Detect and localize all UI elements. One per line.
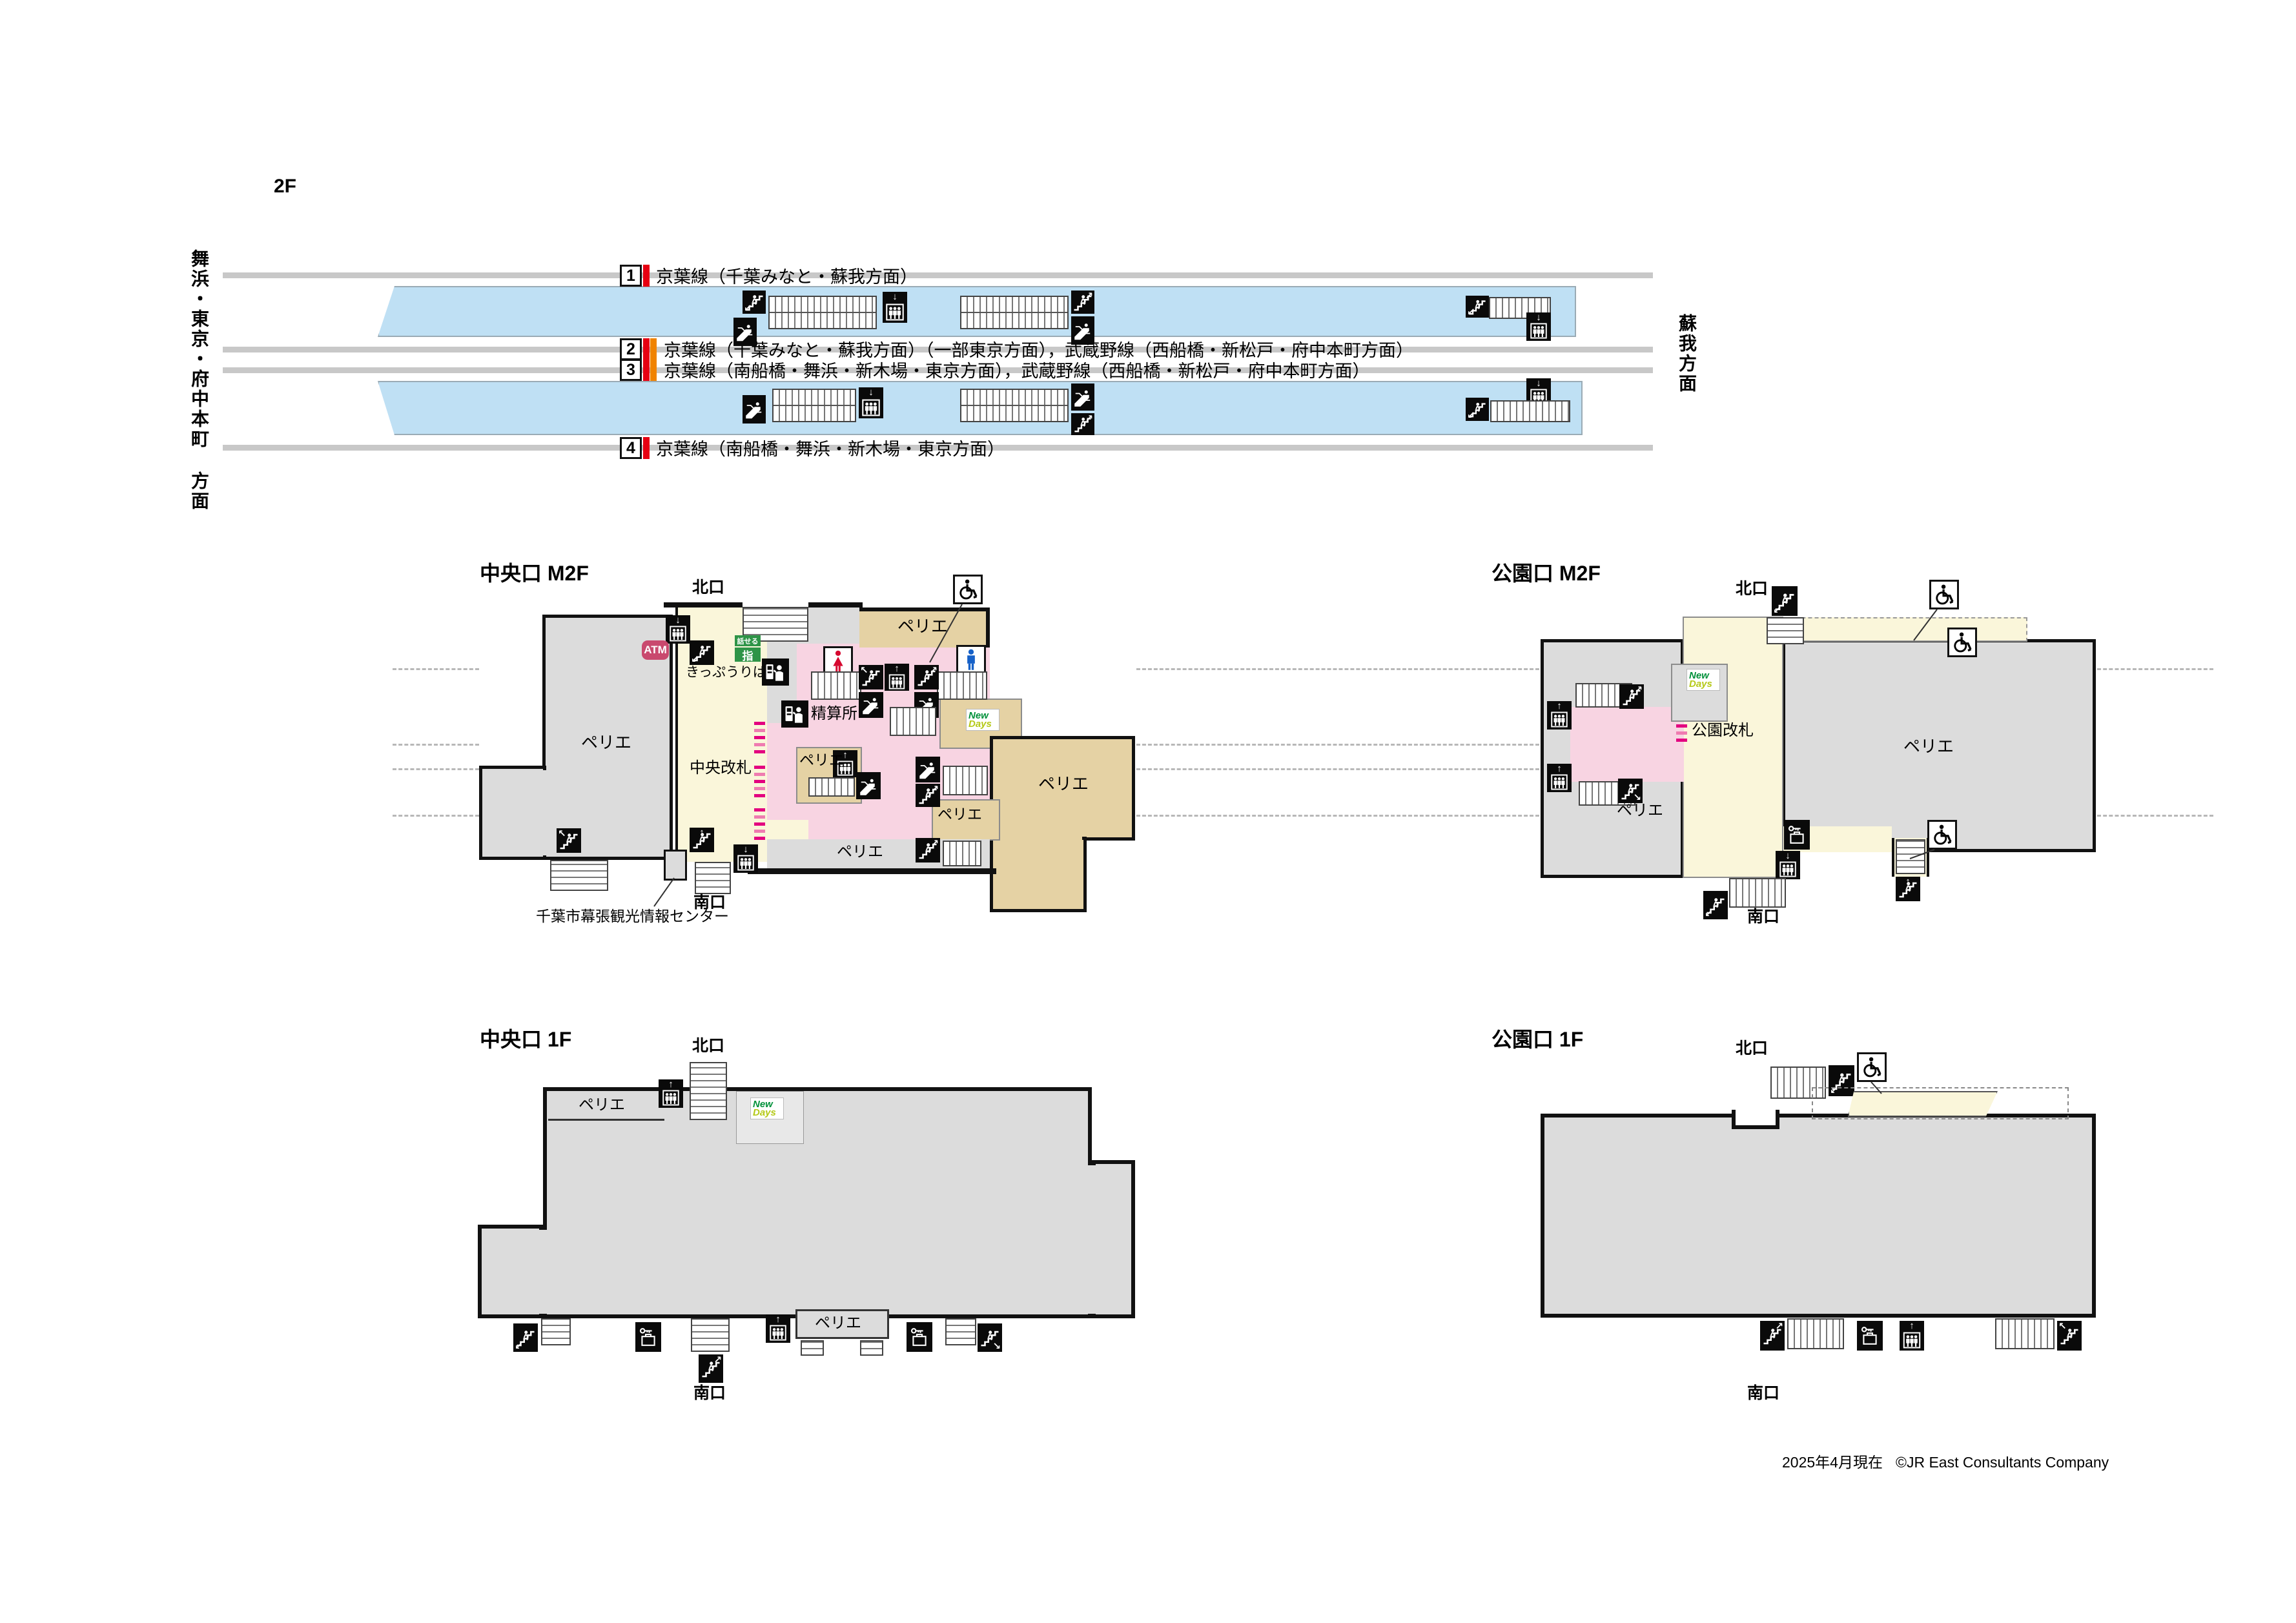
station-floor-map: 2F 舞浜・東京・府中本町 方面 蘇我方面 1 京葉線（千葉みなと・蘇我方面） …: [0, 0, 2296, 1623]
park-gate-label: 公園改札: [1692, 722, 1754, 740]
stairs-icon: [2057, 1321, 2082, 1351]
assist-ticket-machine-sign: 話せる: [735, 635, 761, 646]
platform-3-line-stripe-keiyo: [643, 359, 650, 381]
gate-tick: [1676, 724, 1687, 728]
elevator-icon: [666, 615, 690, 644]
stairs-icon: [916, 838, 940, 863]
track-dash-line: [2097, 668, 2213, 670]
stairs-icon: [513, 1323, 538, 1352]
escalator-icon: [916, 757, 940, 782]
stairwell: [811, 671, 861, 700]
wall: [748, 868, 996, 874]
central-gate-label: 中央改札: [690, 759, 752, 777]
section-title-chuo-m2f: 中央口 M2F: [480, 562, 589, 586]
wheelchair-accessible-icon: [1947, 628, 1977, 657]
gate-tick: [754, 743, 765, 746]
perie-label: ペリエ: [938, 806, 982, 822]
elevator-icon: [883, 292, 907, 323]
gate-tick: [754, 787, 765, 790]
gate-tick: [754, 773, 765, 776]
escalator-icon: [856, 772, 881, 799]
wall: [808, 602, 863, 607]
north-exit-label: 北口: [692, 578, 724, 597]
track-dash-line: [1136, 815, 1539, 817]
stairs-icon: [1896, 877, 1920, 901]
gate-tick: [754, 722, 765, 725]
gate-tick: [1676, 739, 1687, 742]
stairwell: [1767, 617, 1804, 644]
track-dash-line: [393, 668, 479, 670]
stairs-icon: [1466, 296, 1489, 318]
assist-ticket-machine-sign-2: 指: [735, 648, 761, 662]
wheelchair-accessible-icon: [1857, 1052, 1887, 1082]
stairs-icon: [1619, 684, 1644, 709]
escalator-icon: [743, 395, 766, 424]
direction-east-label: 蘇我方面: [1674, 314, 1699, 394]
platform-3-line-stripe-musashino: [650, 359, 657, 381]
gate-tick: [754, 729, 765, 732]
coin-locker-icon: [1784, 820, 1810, 850]
perie-label: ペリエ: [897, 617, 948, 637]
perie-label: ペリエ: [815, 1314, 861, 1332]
stairs-icon: [1071, 413, 1094, 435]
stairwell-landing-line: [961, 405, 1067, 406]
seam-patch: [538, 1230, 548, 1314]
elevator-icon: [1900, 1321, 1924, 1351]
elevator-icon: [766, 1314, 790, 1343]
stairs-icon: [1466, 398, 1489, 421]
stairs-icon: [859, 665, 883, 689]
platform-1-line-stripe: [643, 265, 650, 287]
newdays-shop-logo: New Days: [966, 709, 999, 731]
stairwell-landing-line: [961, 312, 1067, 313]
coin-locker-icon: [1857, 1321, 1883, 1351]
stairs-icon: [690, 828, 714, 852]
map-updated-date: 2025年4月現在: [1782, 1454, 1883, 1471]
elevator-icon: [659, 1079, 683, 1108]
south-exit-label: 南口: [693, 1384, 726, 1403]
newdays-line2: Days: [753, 1108, 781, 1118]
escalator-icon: [1071, 316, 1094, 345]
stairwell: [890, 707, 936, 736]
newdays-line2: Days: [1689, 679, 1717, 689]
stairwell: [695, 862, 731, 894]
floor-2f-label: 2F: [274, 176, 296, 198]
newdays-shop-logo: New Days: [1686, 669, 1720, 691]
elevator-icon: [885, 664, 909, 691]
koen-1f-north-notch: [1732, 1110, 1779, 1129]
koen-1f-main-block: [1541, 1114, 2096, 1318]
stairwell-landing-line: [770, 312, 876, 313]
direction-west-label: 舞浜・東京・府中本町 方面: [186, 249, 212, 511]
stairwell: [943, 766, 988, 795]
perie-label: ペリエ: [579, 1096, 625, 1114]
gate-tick: [754, 750, 765, 753]
ticket-machine-icon: [762, 658, 789, 686]
stairwell: [691, 1318, 730, 1352]
platform-3-number-box: 3: [620, 359, 642, 381]
stairs-icon: [557, 828, 581, 853]
stairwell: [937, 671, 987, 700]
track-dash-line: [2097, 815, 2213, 817]
stairs-icon: [1071, 291, 1094, 314]
stairwell: [860, 1340, 883, 1356]
wall: [664, 602, 743, 607]
gate-tick: [1676, 731, 1687, 735]
north-exit-label: 北口: [1736, 1039, 1768, 1058]
elevator-icon: [1526, 312, 1551, 341]
stairs-icon: [690, 640, 714, 665]
north-exit-label: 北口: [692, 1037, 724, 1056]
gate-tick: [754, 736, 765, 739]
stairwell: [1896, 839, 1925, 874]
stairwell: [550, 860, 608, 891]
gate-tick: [754, 808, 765, 811]
track-dash-line: [1136, 668, 1539, 670]
track-dash-line: [1136, 744, 1539, 746]
fare-adjustment-machine-icon: [781, 700, 808, 728]
koen-m2f-paid-area: [1570, 707, 1684, 782]
north-exit-label: 北口: [1736, 580, 1768, 598]
koen-m2f-unpaid-corridor: [1683, 617, 1783, 878]
track-dash-line: [1136, 768, 1539, 770]
stairwell: [1490, 400, 1570, 422]
platform-3-lines-label: 京葉線（南船橋・舞浜・新木場・東京方面），武蔵野線（西船橋・新松戸・府中本町方面…: [664, 362, 1370, 382]
platform-4-line-stripe: [643, 437, 650, 459]
stairwell: [541, 1318, 571, 1345]
koen-m2f-north-arm: [1782, 617, 2027, 642]
gate-tick: [754, 780, 765, 783]
escalator-icon: [733, 318, 757, 346]
perie-label: ペリエ: [799, 751, 844, 768]
stairwell: [808, 777, 855, 797]
stairs-icon: [914, 665, 939, 689]
perie-label: ペリエ: [1903, 737, 1954, 757]
elevator-icon: [1776, 851, 1800, 879]
south-exit-label: 南口: [1747, 1384, 1779, 1403]
male-toilet-icon: [956, 645, 986, 675]
gate-tick: [754, 815, 765, 819]
perie-label: ペリエ: [1617, 802, 1663, 820]
platform-2-lines-label: 京葉線（千葉みなと・蘇我方面）（一部東京方面），武蔵野線（西船橋・新松戸・府中本…: [664, 341, 1413, 361]
platform-2-number-box: 2: [620, 338, 642, 360]
seam-patch: [994, 833, 1082, 842]
elevator-icon: [859, 387, 883, 418]
section-title-chuo-1f: 中央口 1F: [480, 1028, 571, 1052]
stairs-icon: [1772, 586, 1798, 616]
ticket-office-label: きっぷうりば: [686, 665, 766, 680]
seam-patch: [540, 770, 549, 855]
chuo-1f-left-block: [478, 1225, 543, 1318]
track-line-1: [223, 272, 1653, 278]
newdays-shop-logo: New Days: [750, 1097, 784, 1119]
wheelchair-accessible-icon: [953, 575, 983, 604]
stairs-icon: [1618, 779, 1643, 803]
platform-4-number-box: 4: [620, 437, 642, 459]
section-title-koen-m2f: 公園口 M2F: [1491, 562, 1601, 586]
atm-sign: ATM: [642, 640, 669, 660]
platform-1-number-box: 1: [620, 265, 642, 287]
stairwell: [1787, 1318, 1844, 1349]
platform-1-lines-label: 京葉線（千葉みなと・蘇我方面）: [656, 267, 917, 287]
copyright: ©JR East Consultants Company: [1896, 1454, 2109, 1471]
chuo-1f-right-block: [1092, 1160, 1135, 1318]
wheelchair-accessible-icon: [1927, 820, 1957, 850]
chuo-m2f-perie-right-shop-lower: [990, 837, 1087, 912]
tourist-info-booth: [664, 850, 687, 881]
gate-tick: [754, 822, 765, 826]
tourist-center-label: 千葉市幕張観光情報センター: [536, 908, 729, 924]
coin-locker-icon: [907, 1322, 932, 1352]
elevator-icon: [1547, 764, 1572, 792]
wheelchair-accessible-icon: [1929, 580, 1959, 609]
seam-patch: [1087, 1165, 1097, 1314]
platform-4-lines-label: 京葉線（南船橋・舞浜・新木場・東京方面）: [656, 440, 1005, 460]
perie-label: ペリエ: [581, 733, 631, 753]
platform-2-line-stripe-musashino: [650, 338, 657, 360]
gate-tick: [754, 837, 765, 840]
stairs-icon: [916, 784, 940, 807]
stairwell: [945, 1318, 976, 1345]
elevator-icon: [1547, 701, 1572, 730]
stairwell: [1995, 1318, 2055, 1349]
stairwell: [943, 841, 981, 866]
stairs-icon: [978, 1323, 1002, 1352]
coin-locker-icon: [635, 1322, 661, 1352]
perie-label: ペリエ: [837, 843, 883, 861]
track-dash-line: [393, 815, 479, 817]
chuo-m2f-perie-left-block-ext: [479, 766, 546, 860]
koen-1f-accessible-ramp: [1848, 1091, 1998, 1117]
stairwell: [1729, 878, 1786, 908]
stairs-icon: [1703, 891, 1728, 919]
gate-tick: [754, 766, 765, 769]
gate-tick: [754, 830, 765, 833]
stairwell: [801, 1340, 824, 1356]
section-title-koen-1f: 公園口 1F: [1491, 1028, 1583, 1052]
fare-adjustment-label: 精算所: [811, 705, 857, 723]
gate-tick: [754, 794, 765, 797]
stairs-icon: [699, 1354, 723, 1383]
escalator-icon: [859, 692, 883, 718]
south-exit-label: 南口: [1747, 908, 1779, 926]
track-dash-line: [393, 744, 479, 746]
escalator-icon: [1071, 383, 1094, 411]
elevator-icon: [733, 844, 758, 873]
platform-2-line-stripe-keiyo: [643, 338, 650, 360]
track-dash-line: [393, 768, 479, 770]
stairwell-landing-line: [774, 405, 855, 406]
chuo-1f-main-block: [543, 1087, 1092, 1318]
stairs-icon: [743, 291, 766, 314]
stairs-icon: [1760, 1321, 1785, 1351]
perie-label: ペリエ: [1038, 775, 1089, 794]
newdays-line2: Days: [969, 719, 997, 729]
stairwell: [690, 1062, 727, 1120]
